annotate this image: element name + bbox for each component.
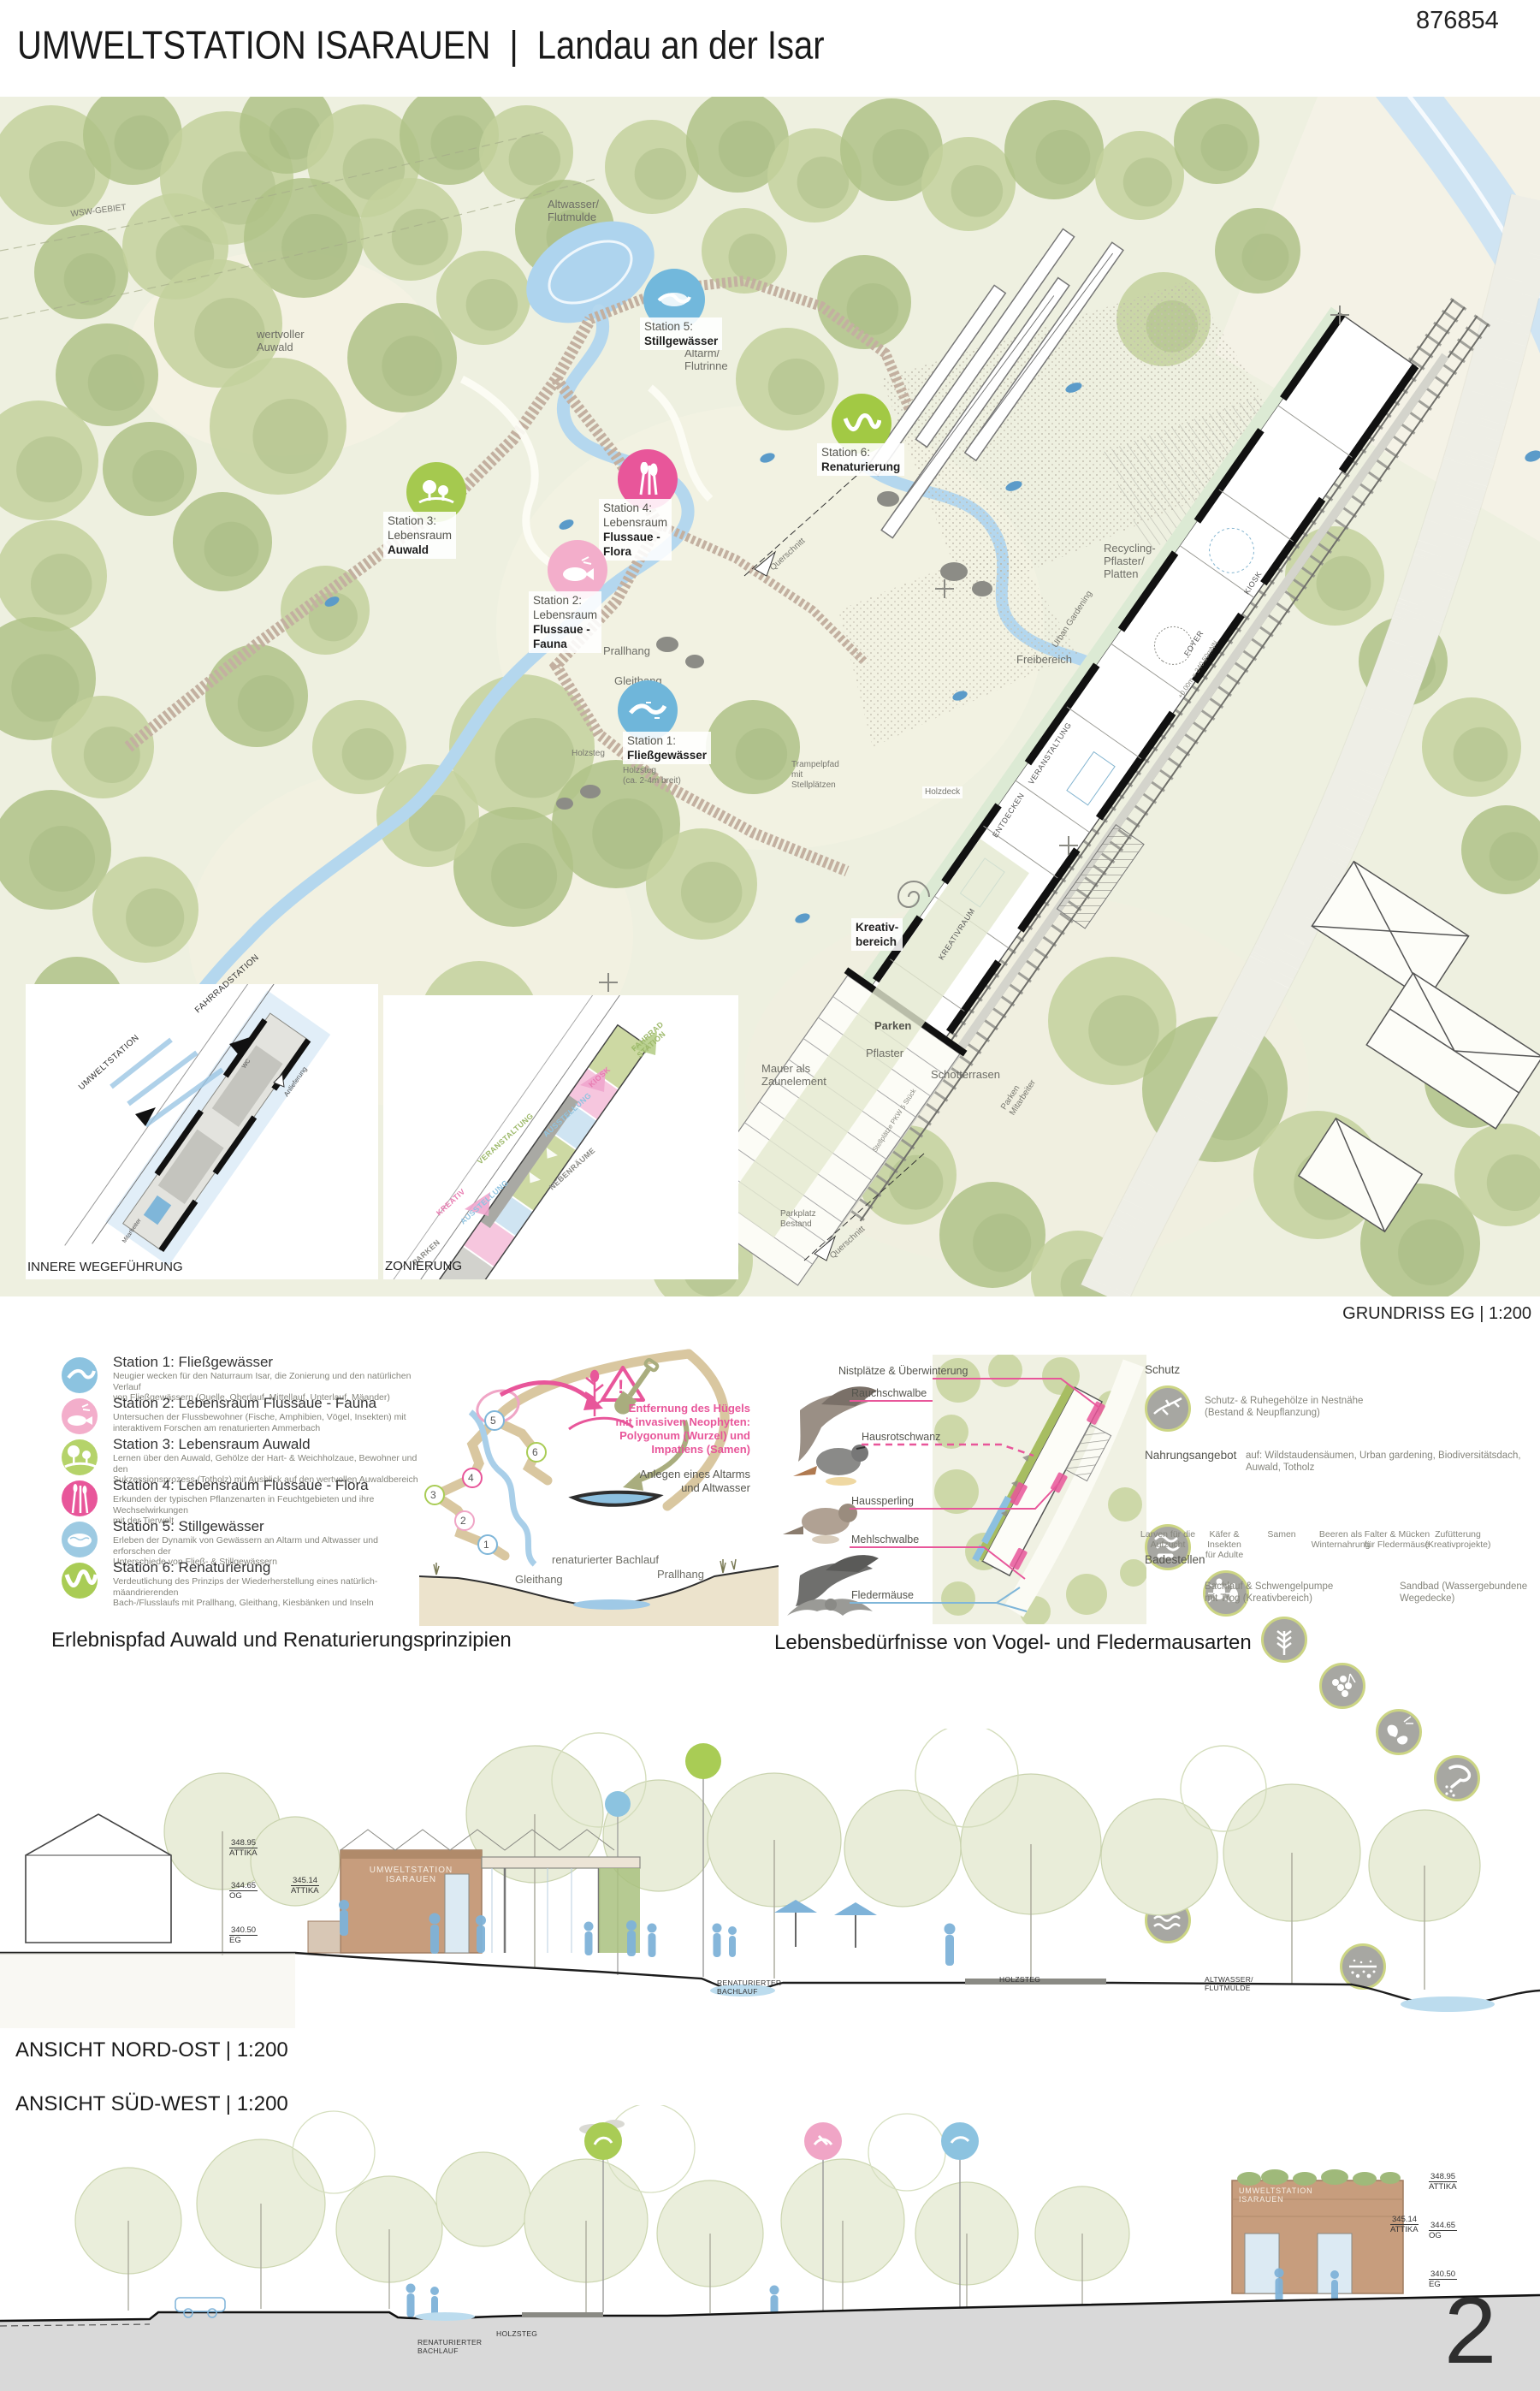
station2-pre: Station 2: Lebensraum — [533, 594, 597, 621]
label-freibereich: Freibereich — [1016, 653, 1072, 666]
station6-label: Station 6:Renaturierung — [817, 443, 904, 476]
renat-bachlauf: renaturierter Bachlauf — [552, 1553, 659, 1566]
seeds-icon — [1261, 1617, 1307, 1663]
elev-ne-2: 345.14ATTIKA — [291, 1876, 319, 1896]
seeds-label: Samen — [1254, 1529, 1309, 1540]
entry-code: 876854 — [1416, 7, 1499, 35]
elev-ne-2-label: ATTIKA — [291, 1886, 319, 1896]
label-pflaster: Pflaster — [866, 1047, 903, 1059]
legend-title-4: Station 4: Lebensraum Flussaue - Flora — [113, 1477, 369, 1493]
schutz-text: Schutz- & Ruhegehölze in Nestnähe (Besta… — [1205, 1395, 1363, 1419]
building-sign-sw: UMWELTSTATION ISARAUEN — [1239, 2186, 1342, 2204]
elev-ne-4-value: 340.50 — [229, 1925, 258, 1936]
birds-header: Nistplätze & Überwinterung — [838, 1365, 968, 1377]
station5-pre: Station 5: — [644, 320, 693, 333]
legend-desc-6: Verdeutlichung des Prinzips der Wiederhe… — [113, 1576, 419, 1609]
renat-badge-3: 3 — [430, 1489, 436, 1501]
renat-gleithang: Gleithang — [515, 1573, 563, 1586]
renat-prallhang: Prallhang — [657, 1568, 704, 1581]
label-holzdeck: Holzdeck — [922, 786, 962, 798]
presentation-board: UMWELTSTATION ISARAUEN|Landau an der Isa… — [0, 0, 1540, 2391]
renat-warn-text: Entfernung des Hügels mit invasiven Neop… — [579, 1402, 750, 1457]
section-sw: 348.95ATTIKA 345.14ATTIKA 344.65OG 340.5… — [0, 2105, 1540, 2391]
zonierung-diagram — [383, 995, 738, 1279]
grundriss-caption: GRUNDRISS EG | 1:200 — [1121, 1304, 1531, 1324]
elev-sw-1: 348.95ATTIKA — [1429, 2172, 1457, 2192]
label-wertvoller-auwald: wertvoller Auwald — [257, 328, 305, 353]
label-kreativbereich: Kreativ- bereich — [851, 918, 903, 951]
umbrella-icons — [774, 1900, 877, 1948]
inset-wegefuehrung: FAHRRADSTATION UMWELTSTATION Anlieferung… — [26, 984, 378, 1279]
elev-ne-4: 340.50EG — [229, 1925, 258, 1945]
site-plan: Altwasser/ Flutmulde wertvoller Auwald W… — [0, 97, 1540, 1296]
station3-label: Station 3: LebensraumAuwald — [383, 512, 456, 559]
label-prallhang: Prallhang — [603, 644, 650, 657]
page-title: UMWELTSTATION ISARAUEN|Landau an der Isa… — [17, 24, 825, 68]
legend-icon-3 — [62, 1439, 98, 1475]
label-schotterrasen: Schotterrasen — [931, 1068, 1000, 1081]
warning-icon: ! — [618, 1376, 624, 1398]
legend-desc-2: Untersuchen der Flussbewohner (Fische, A… — [113, 1412, 406, 1433]
station6-name: Renaturierung — [821, 460, 900, 473]
nahrung-subtext: auf: Wildstaudensäumen, Urban gardening,… — [1246, 1450, 1540, 1474]
species-hausrotschwanz: Hausrotschwanz — [862, 1431, 940, 1443]
renaturierung-diagram: 5 6 4 3 2 1 ! Entfernung des Hügels mit … — [419, 1344, 779, 1626]
inset2-caption: ZONIERUNG — [385, 1259, 462, 1273]
elev-ne-1: 348.95ATTIKA — [229, 1838, 258, 1858]
legend-icon-4 — [62, 1480, 98, 1516]
legend-icon-2 — [62, 1398, 98, 1434]
label-altarm-flutrinne: Altarm/ Flutrinne — [684, 347, 728, 372]
bade2-text: Sandbad (Wassergebundene Wegedecke) — [1400, 1581, 1527, 1605]
nahrung-header: Nahrungsangebot — [1145, 1449, 1236, 1462]
title-main: UMWELTSTATION ISARAUEN — [17, 24, 490, 68]
birds-mini-plan — [933, 1355, 1146, 1624]
station2-label: Station 2: LebensraumFlussaue - Fauna — [529, 591, 601, 653]
elev-sw-2-label: ATTIKA — [1390, 2225, 1419, 2234]
station4-name: Flussaue - Flora — [603, 531, 660, 558]
legend-title-5: Station 5: Stillgewässer — [113, 1518, 264, 1534]
ne-label-altwasser: ALTWASSER/ FLUTMULDE — [1205, 1975, 1253, 1992]
elev-ne-3: 344.65OG — [229, 1881, 258, 1901]
legend-title-2: Station 2: Lebensraum Flussaue - Fauna — [113, 1395, 376, 1411]
elev-sw-3-value: 344.65 — [1429, 2221, 1457, 2231]
station1-label: Station 1:Fließgewässer — [623, 732, 711, 764]
renat-badge-5: 5 — [490, 1415, 496, 1427]
species-mehlschwalbe: Mehlschwalbe — [851, 1534, 919, 1546]
elev-sw-4-label: EG — [1429, 2280, 1441, 2289]
elev-sw-1-value: 348.95 — [1429, 2172, 1457, 2182]
label-holzsteg-breit: Holzsteg (ca. 2-4m breit) — [623, 766, 681, 786]
legend-title-6: Station 6: Renaturierung — [113, 1559, 270, 1575]
elev-ne-1-value: 348.95 — [229, 1838, 258, 1848]
habitat-legend: Schutz Schutz- & Ruhegehölze in Nestnähe… — [1145, 1348, 1540, 1630]
station4-label: Station 4: LebensraumFlussaue - Flora — [599, 499, 672, 561]
label-mauer: Mauer als Zaunelement — [761, 1062, 826, 1088]
section-ne-caption: ANSICHT NORD-OST | 1:200 — [15, 2038, 288, 2062]
station3-pre: Station 3: Lebensraum — [388, 514, 452, 542]
branch-icon — [1145, 1385, 1191, 1432]
species-rauchschwalbe: Rauchschwalbe — [851, 1387, 927, 1399]
birds-panel: Nistplätze & Überwinterung Rauchschwalbe… — [774, 1348, 1146, 1630]
section-ne: 348.95ATTIKA 345.14ATTIKA 344.65OG 340.5… — [0, 1729, 1540, 2028]
wegefuehrung-diagram — [26, 984, 378, 1279]
ne-label-bachlauf: RENATURIERTER BACHLAUF — [717, 1979, 781, 1996]
renat-altarm-text: Anlegen eines Altarms und Altwasser — [605, 1468, 750, 1495]
station5-name: Stillgewässer — [644, 335, 718, 347]
station3-name: Auwald — [388, 543, 429, 556]
species-fledermaeuse: Fledermäuse — [851, 1589, 914, 1601]
building-sign-ne: UMWELTSTATION ISARAUEN — [349, 1866, 473, 1884]
legend-title-1: Station 1: Fließgewässer — [113, 1354, 273, 1370]
elev-ne-2-value: 345.14 — [291, 1876, 319, 1886]
elev-ne-3-value: 344.65 — [229, 1881, 258, 1891]
renat-badge-6: 6 — [532, 1446, 538, 1458]
station1-name: Fließgewässer — [627, 749, 707, 762]
species-haussperling: Haussperling — [851, 1495, 914, 1507]
renat-badge-2: 2 — [460, 1515, 466, 1527]
legend-icon-6 — [62, 1563, 98, 1599]
station6-pre: Station 6: — [821, 446, 870, 459]
legend-icon-1 — [62, 1357, 98, 1393]
title-sub: Landau an der Isar — [537, 24, 825, 68]
sw-label-holzsteg: HOLZSTEG — [496, 2329, 537, 2338]
inset1-caption: INNERE WEGEFÜHRUNG — [27, 1260, 183, 1274]
label-altwasser-flutmulde: Altwasser/ Flutmulde — [548, 198, 599, 223]
elev-ne-4-label: EG — [229, 1936, 241, 1945]
bade-header: Badestellen — [1145, 1553, 1205, 1566]
title-separator: | — [509, 24, 518, 68]
schutz-header: Schutz — [1145, 1363, 1180, 1376]
moth-label: Falter & Mücken für Fledermäuse — [1364, 1529, 1430, 1550]
legend-caption: Erlebnispfad Auwald und Renaturierungspr… — [51, 1629, 512, 1652]
elev-sw-3-label: OG — [1429, 2231, 1442, 2240]
label-holzsteg: Holzsteg — [572, 749, 605, 759]
elev-sw-3: 344.65OG — [1429, 2221, 1457, 2240]
label-parkplatz-bestand: Parkplatz Bestand — [780, 1209, 816, 1230]
legend-title-3: Station 3: Lebensraum Auwald — [113, 1436, 311, 1452]
label-trampelpfad: Trampelpfad mit Stellplätzen — [791, 760, 839, 791]
elev-sw-2-value: 345.14 — [1390, 2215, 1419, 2225]
station2-name: Flussaue - Fauna — [533, 623, 590, 650]
berries-icon — [1319, 1663, 1365, 1709]
page-number: 2 — [1444, 2276, 1496, 2385]
section-sw-drawing — [0, 2105, 1540, 2391]
sparrow-icon — [783, 1504, 857, 1544]
berries-label: Beeren als Winternahrung — [1309, 1529, 1372, 1550]
elev-sw-1-label: ATTIKA — [1429, 2182, 1457, 2192]
renat-badge-4: 4 — [468, 1472, 474, 1484]
inset-zonierung: FAHRRAD STATION KIOSK AUSSTELLUNG VERANS… — [383, 995, 738, 1279]
label-parken: Parken — [874, 1019, 911, 1032]
renat-badge-1: 1 — [483, 1539, 489, 1551]
elev-ne-1-label: ATTIKA — [229, 1848, 258, 1858]
elev-sw-2: 345.14ATTIKA — [1390, 2215, 1419, 2234]
bade1-text: Bachlauf & Schwengelpumpe mit Trog (Krea… — [1205, 1581, 1333, 1605]
feeding-label: Zufütterung (Kreativprojekte) — [1424, 1529, 1492, 1550]
station5-label: Station 5:Stillgewässer — [640, 317, 722, 350]
elev-ne-3-label: OG — [229, 1891, 242, 1901]
station4-pre: Station 4: Lebensraum — [603, 501, 667, 529]
sw-label-bachlauf: RENATURIERTER BACHLAUF — [418, 2338, 482, 2355]
legend-icon-5 — [62, 1522, 98, 1557]
larvae-label: Larven für die Aufzucht — [1138, 1529, 1198, 1550]
label-recycling: Recycling- Pflaster/ Platten — [1104, 542, 1156, 580]
station1-pre: Station 1: — [627, 734, 676, 747]
birds-caption: Lebensbedürfnisse von Vogel- und Flederm… — [774, 1631, 1252, 1655]
ne-label-holzsteg: HOLZSTEG — [999, 1975, 1040, 1984]
